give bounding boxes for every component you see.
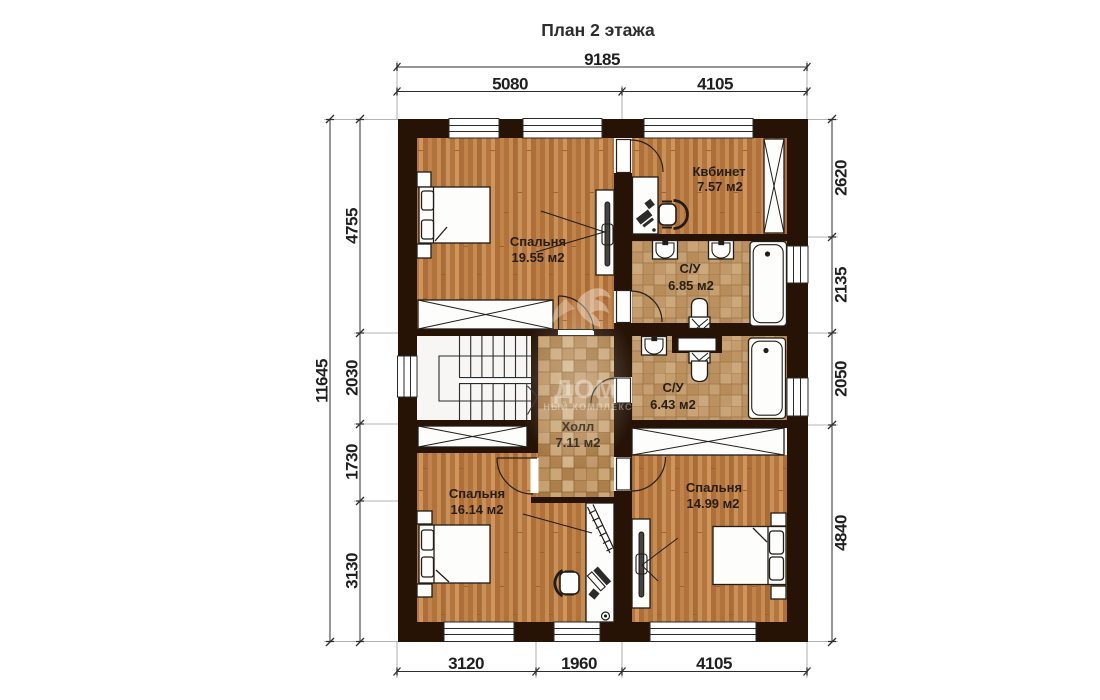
svg-text:Спальня: Спальня <box>510 234 566 249</box>
svg-text:6.85 м2: 6.85 м2 <box>668 278 714 293</box>
svg-text:НЫЙ КОМПЛЕКС: НЫЙ КОМПЛЕКС <box>543 401 632 412</box>
svg-text:План 2 этажа: План 2 этажа <box>541 20 655 40</box>
svg-text:9185: 9185 <box>584 50 620 69</box>
svg-text:Квбинет: Квбинет <box>692 164 745 179</box>
svg-text:С/У: С/У <box>662 380 684 395</box>
svg-text:3130: 3130 <box>343 553 362 589</box>
svg-text:2135: 2135 <box>832 267 851 303</box>
svg-text:4105: 4105 <box>697 75 733 94</box>
svg-text:2620: 2620 <box>832 160 851 196</box>
svg-text:5080: 5080 <box>492 75 528 94</box>
svg-text:4105: 4105 <box>696 654 732 673</box>
svg-text:Спальня: Спальня <box>449 486 505 501</box>
svg-text:С/У: С/У <box>679 261 701 276</box>
svg-text:4755: 4755 <box>343 208 362 244</box>
svg-text:ДОМ: ДОМ <box>554 374 617 404</box>
svg-text:16.14 м2: 16.14 м2 <box>451 502 504 517</box>
svg-text:1730: 1730 <box>343 444 362 480</box>
svg-text:14.99 м2: 14.99 м2 <box>687 496 740 511</box>
svg-text:6.43 м2: 6.43 м2 <box>650 397 696 412</box>
svg-text:3120: 3120 <box>448 654 484 673</box>
svg-text:4840: 4840 <box>832 515 851 551</box>
svg-text:7.57 м2: 7.57 м2 <box>697 179 743 194</box>
svg-text:11645: 11645 <box>313 359 332 403</box>
svg-text:2030: 2030 <box>343 360 362 396</box>
svg-text:1960: 1960 <box>561 654 597 673</box>
svg-text:2050: 2050 <box>832 361 851 397</box>
svg-text:Спальня: Спальня <box>686 480 742 495</box>
svg-text:19.55 м2: 19.55 м2 <box>512 250 565 265</box>
